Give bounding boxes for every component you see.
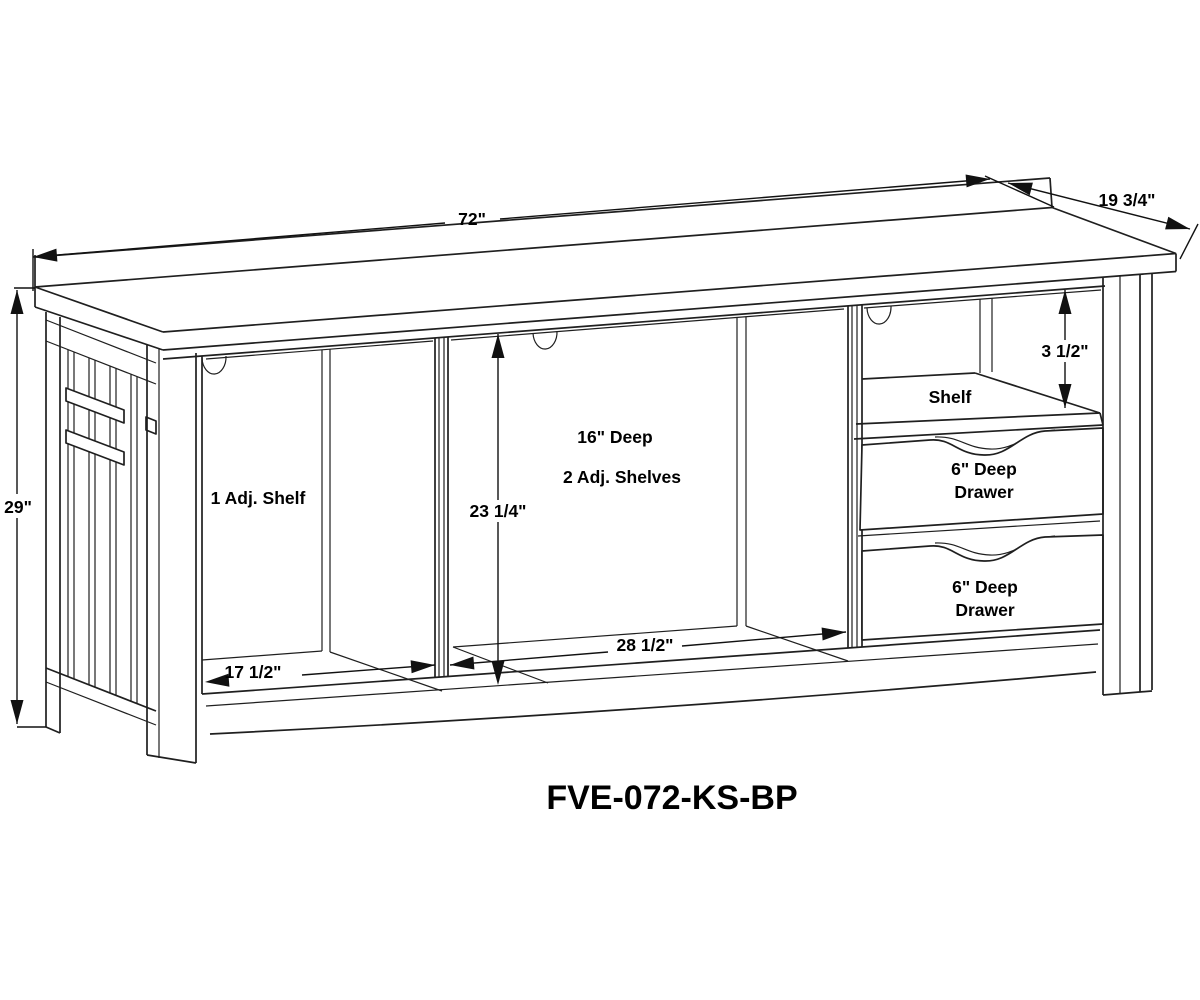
arrowhead-icon: [822, 628, 846, 641]
product-code-title: FVE-072-KS-BP: [546, 779, 797, 817]
overall-depth-label: 19 3/4": [1099, 190, 1156, 210]
top-slab: [35, 178, 1176, 359]
left-compartment-opening: [202, 341, 442, 691]
front-left-leg: [147, 345, 202, 763]
arrowhead-icon: [11, 700, 24, 724]
arrowhead-icon: [11, 290, 24, 314]
drawer-bottom-label-line1: 6" Deep: [952, 577, 1018, 597]
arrowhead-icon: [1165, 217, 1190, 230]
drawer-bottom-label-line2: Drawer: [955, 600, 1015, 620]
drawer-top-face: [860, 428, 1103, 530]
overall-width-label: 72": [458, 209, 486, 229]
furniture-dimension-diagram: 72" 19 3/4" 29" 1 Adj. Shelf 16" Deep 2 …: [0, 0, 1200, 1000]
drawer-top-label-line2: Drawer: [954, 482, 1014, 502]
drawer-top-label-line1: 6" Deep: [951, 459, 1017, 479]
left-opening-width-label: 17 1/2": [225, 662, 282, 682]
diagram-canvas: 72" 19 3/4" 29" 1 Adj. Shelf 16" Deep 2 …: [0, 0, 1200, 1000]
dim-overall-width: [14, 175, 1054, 292]
arrowhead-icon: [1008, 183, 1033, 196]
front-right-leg: [1103, 274, 1152, 695]
center-depth-label: 16" Deep: [577, 427, 652, 447]
overall-height-label: 29": [4, 497, 32, 517]
arrowhead-icon: [33, 249, 57, 262]
left-compartment-label: 1 Adj. Shelf: [211, 488, 306, 508]
cable-hole-icon: [867, 306, 891, 324]
arrowhead-icon: [450, 657, 474, 670]
divider-right: [848, 305, 862, 648]
center-shelves-label: 2 Adj. Shelves: [563, 467, 681, 487]
top-opening-height-label: 3 1/2": [1041, 341, 1088, 361]
arrowhead-icon: [411, 660, 435, 673]
fixed-shelf-label: Shelf: [929, 387, 972, 407]
arrowhead-icon: [1059, 384, 1072, 408]
divider-left: [435, 337, 448, 677]
interior-height-label: 23 1/4": [470, 501, 527, 521]
left-end-panel: [46, 312, 156, 733]
center-opening-width-label: 28 1/2": [617, 635, 674, 655]
arrowhead-icon: [492, 334, 505, 358]
center-compartment-opening: [451, 309, 848, 683]
